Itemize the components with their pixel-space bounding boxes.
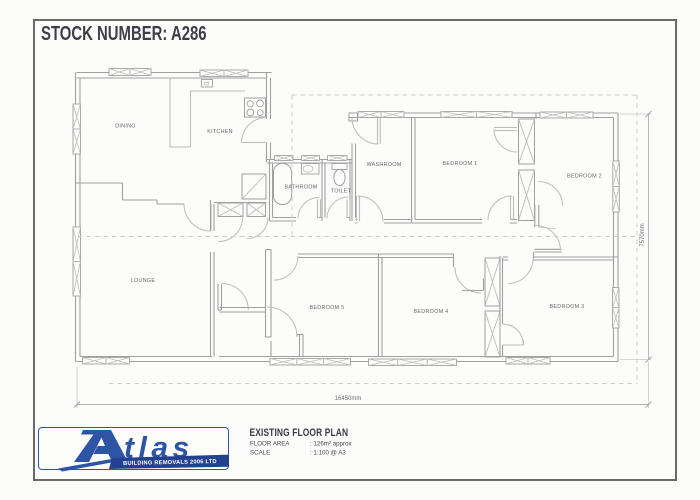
svg-text:EXISTING FLOOR PLAN: EXISTING FLOOR PLAN — [250, 427, 349, 440]
svg-text:SCALE: SCALE — [250, 450, 270, 457]
svg-text:FLOOR AREA: FLOOR AREA — [250, 441, 290, 448]
svg-text:: 126m² approx: : 126m² approx — [310, 441, 353, 448]
svg-text:: 1:100 @ A3: : 1:100 @ A3 — [310, 450, 346, 457]
